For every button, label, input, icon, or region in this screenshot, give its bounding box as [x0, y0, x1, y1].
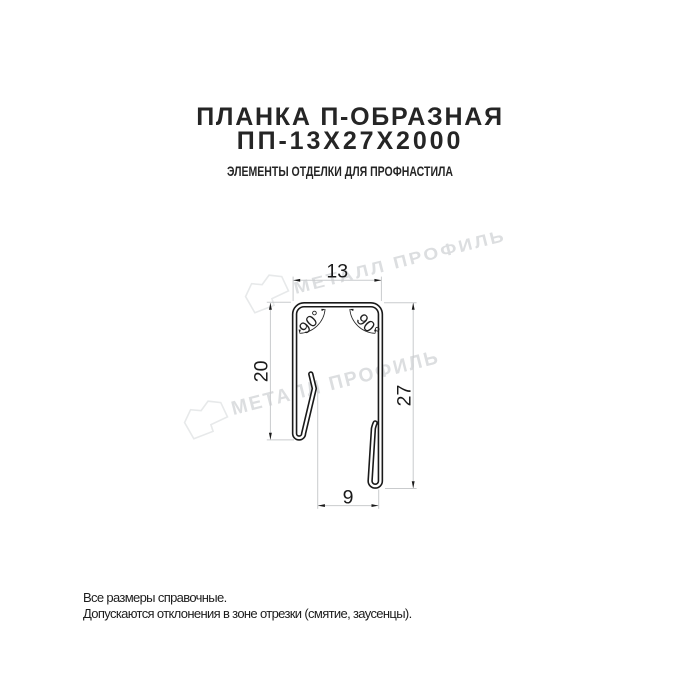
- svg-text:27: 27: [394, 385, 416, 407]
- svg-text:9: 9: [343, 486, 354, 508]
- svg-text:13: 13: [326, 261, 348, 283]
- svg-text:20: 20: [251, 360, 273, 382]
